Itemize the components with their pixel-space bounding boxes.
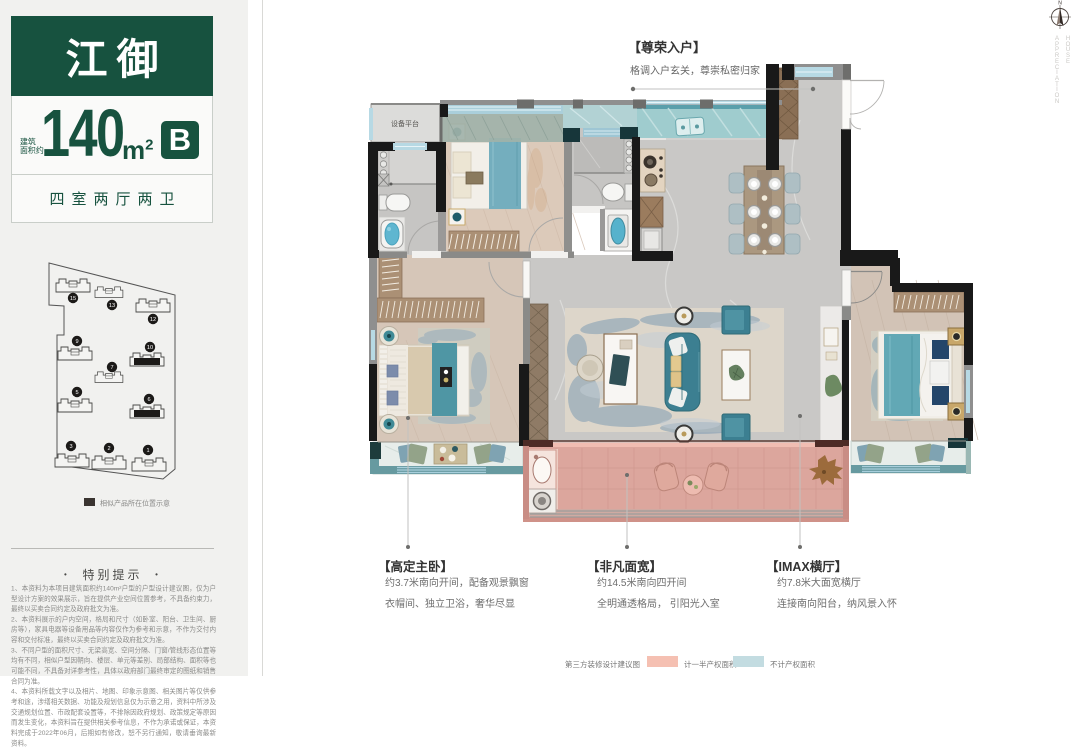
svg-text:N: N <box>1058 1 1062 7</box>
svg-text:设备平台: 设备平台 <box>391 119 419 128</box>
